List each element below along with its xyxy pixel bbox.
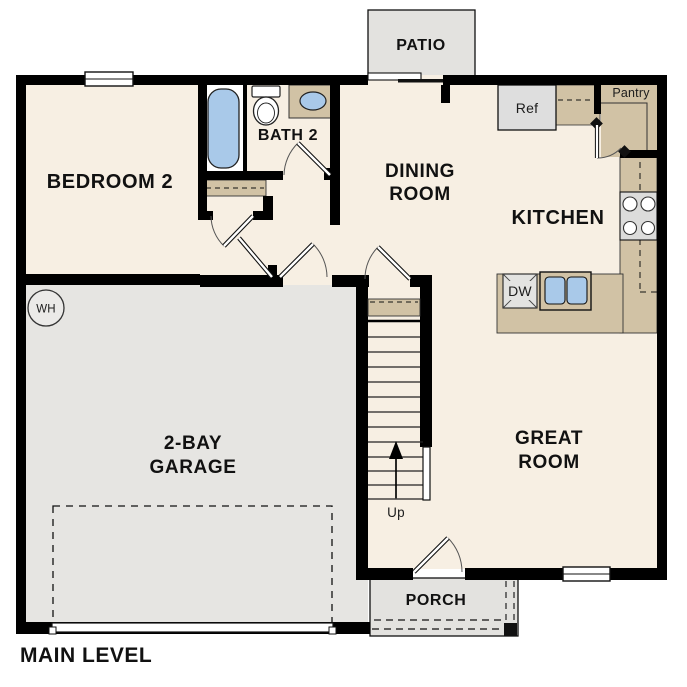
dining-label-line2: ROOM xyxy=(389,184,451,205)
toilet-bowl-inner xyxy=(258,103,275,123)
refrigerator: Ref xyxy=(498,85,556,130)
wall-stairs-right xyxy=(420,277,432,447)
water-heater-label: WH xyxy=(36,304,56,316)
wall-top-right xyxy=(443,75,667,85)
bath-sink xyxy=(300,92,326,110)
garage-overhead-door xyxy=(49,623,336,634)
bedroom2-label: BEDROOM 2 xyxy=(47,171,174,193)
patio-label: PATIO xyxy=(396,37,446,54)
burner-icon xyxy=(642,222,655,235)
bathtub xyxy=(204,85,244,172)
greatroom-label-line2: ROOM xyxy=(518,452,580,473)
tub xyxy=(208,89,239,168)
pantry-label: Pantry xyxy=(612,86,650,100)
burner-icon xyxy=(623,197,637,211)
burner-icon xyxy=(641,197,655,211)
dishwasher-label: DW xyxy=(508,283,532,299)
kitchen-sink xyxy=(540,272,591,310)
wall-garage-right xyxy=(356,277,368,578)
wall-bedroom-right xyxy=(198,85,207,215)
wall-tub-partition xyxy=(243,85,247,172)
garage-label-line1: 2-BAY xyxy=(164,433,222,454)
stairs-up-label: Up xyxy=(387,505,405,520)
kitchen-label: KITCHEN xyxy=(511,207,604,229)
slider-panel-moving xyxy=(398,79,443,83)
porch-label: PORCH xyxy=(406,592,467,609)
garage-label-line2: GARAGE xyxy=(150,457,237,478)
garage-door-jamb-left xyxy=(49,627,56,634)
porch-post xyxy=(504,623,517,636)
kitchen-upper-cabinet xyxy=(556,85,600,125)
toilet xyxy=(252,86,280,125)
dishwasher: DW xyxy=(503,274,537,308)
stove xyxy=(620,192,657,240)
sink-basin-left xyxy=(545,277,565,304)
floor-plan: DW Ref WH xyxy=(0,0,687,687)
water-heater: WH xyxy=(28,290,64,326)
greatroom-label-line1: GREAT xyxy=(515,428,583,449)
bath2-label: BATH 2 xyxy=(258,127,318,144)
sink-basin-right xyxy=(567,277,587,304)
toilet-tank xyxy=(252,86,280,97)
wall-bath-east xyxy=(330,85,340,225)
dining-label-line1: DINING xyxy=(385,161,455,182)
wall-left xyxy=(16,75,26,634)
floor-plan-svg: DW Ref WH xyxy=(0,0,687,687)
wall-greatroom-bottom-3 xyxy=(610,568,667,580)
kitchen-counter-right xyxy=(620,157,657,333)
slider-panel-fixed xyxy=(368,73,421,80)
wall-pantry-stub xyxy=(594,85,601,114)
garage-door-panel xyxy=(52,623,333,632)
wall-bath-south xyxy=(198,171,283,180)
refrigerator-label: Ref xyxy=(516,100,538,116)
wall-top-left xyxy=(16,75,368,85)
stair-storage-shelf xyxy=(368,299,420,316)
burner-icon xyxy=(624,222,637,235)
wall-greatroom-bottom-2 xyxy=(465,568,563,580)
garage-door-jamb-right xyxy=(329,627,336,634)
wall-kitchen-stub xyxy=(441,85,450,103)
wall-bedroom-garage xyxy=(16,274,200,285)
stair-railing xyxy=(423,447,430,500)
wall-closet-stub xyxy=(263,196,273,220)
plan-title: MAIN LEVEL xyxy=(20,644,152,667)
